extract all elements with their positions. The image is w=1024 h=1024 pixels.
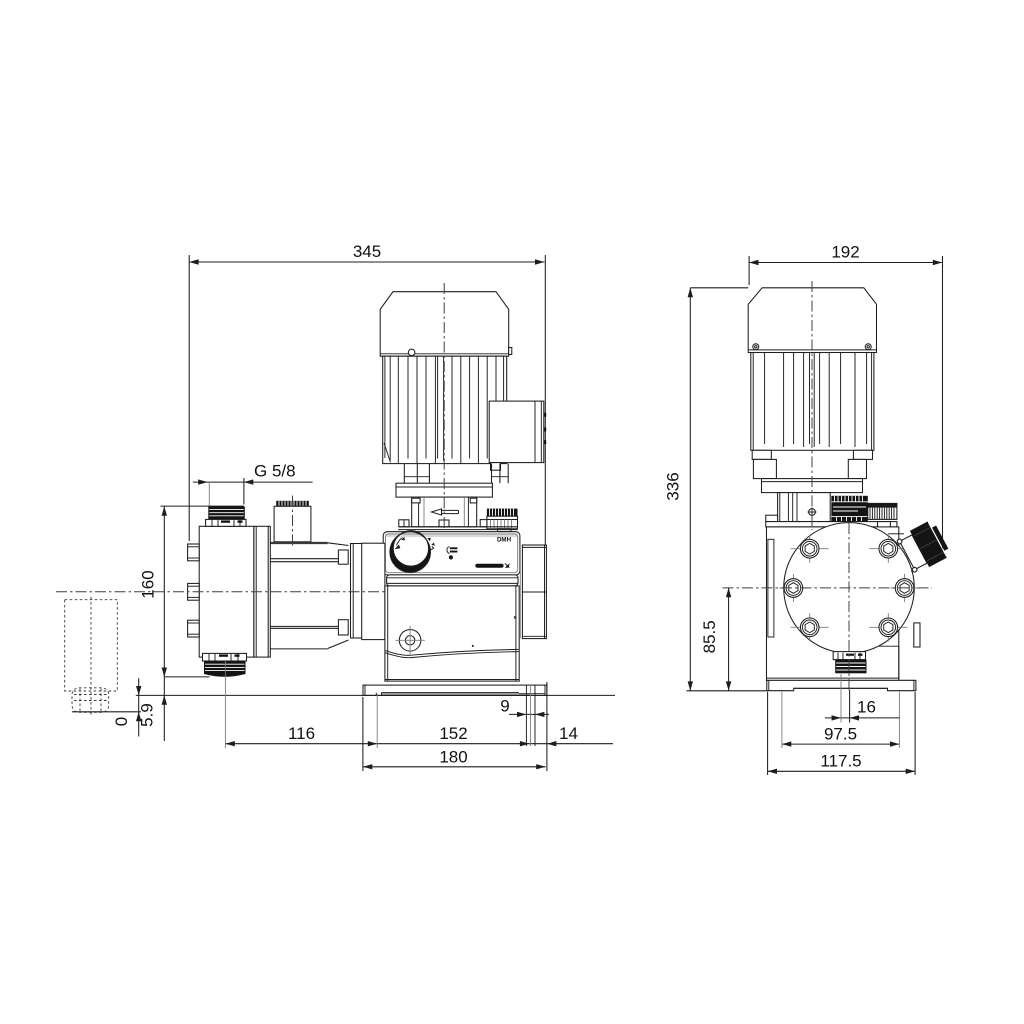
svg-text:345: 345 xyxy=(353,242,381,261)
svg-text:152: 152 xyxy=(439,724,467,743)
svg-text:336: 336 xyxy=(664,472,683,500)
svg-text:116: 116 xyxy=(288,724,315,743)
svg-text:192: 192 xyxy=(831,243,859,262)
svg-text:97.5: 97.5 xyxy=(824,724,857,743)
svg-text:9: 9 xyxy=(500,697,509,716)
svg-text:85.5: 85.5 xyxy=(700,620,719,653)
svg-text:16: 16 xyxy=(857,698,876,717)
svg-text:160: 160 xyxy=(139,570,158,598)
svg-text:14: 14 xyxy=(559,724,578,743)
svg-text:180: 180 xyxy=(439,747,467,766)
svg-text:5.9: 5.9 xyxy=(138,703,157,727)
svg-text:0: 0 xyxy=(112,717,131,726)
svg-text:G 5/8: G 5/8 xyxy=(254,462,296,481)
svg-text:117.5: 117.5 xyxy=(820,751,861,770)
svg-text:DMH: DMH xyxy=(497,537,512,544)
